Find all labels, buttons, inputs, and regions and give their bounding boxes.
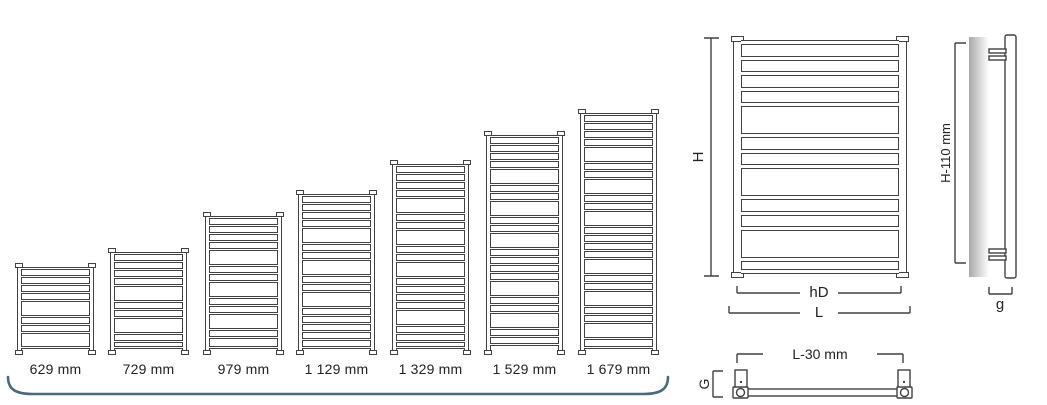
rung-bar (396, 252, 465, 255)
rung-bar (584, 129, 653, 132)
radiator-thumbnail (205, 212, 282, 355)
rung-bar (490, 295, 559, 298)
rung-bar (209, 312, 278, 315)
rung-bar (114, 308, 183, 311)
radiator-thumbnail (17, 263, 94, 355)
top-view-left-riser (735, 370, 747, 389)
rung-bar (114, 316, 183, 319)
rung-bar (490, 199, 559, 202)
rung-bar (302, 218, 371, 221)
rail-cap (557, 350, 565, 355)
rung-bar (490, 279, 559, 282)
side-view-collector-tube (1005, 35, 1016, 278)
rung-bar (302, 306, 371, 309)
rung-bar (396, 284, 465, 287)
rung-bar (584, 257, 653, 260)
collector-rail (205, 215, 210, 352)
rung-bar (209, 328, 278, 331)
side-wall-distance-bracket (989, 287, 1012, 294)
rung-bar (396, 308, 465, 311)
radiator-thumbnail (110, 248, 187, 355)
rung-bar (584, 337, 653, 340)
rung-bar (302, 194, 371, 197)
side-bottom-connector (989, 249, 1006, 253)
rung-bar (490, 263, 559, 266)
top-view-left-pipe (737, 389, 745, 397)
front-view-radiator (733, 36, 907, 278)
rung-bar (302, 282, 371, 285)
radiator-thumbnail (392, 160, 469, 355)
rung-bar (490, 167, 559, 170)
rail-cap (15, 350, 23, 355)
rung-bar (584, 346, 653, 349)
rung-bar (302, 242, 371, 245)
rung-bar (209, 264, 278, 267)
rung-bar (584, 177, 653, 180)
rung-bar (584, 225, 653, 228)
rung-bar (490, 135, 559, 138)
rung-bar (114, 300, 183, 303)
rung-bar (584, 305, 653, 308)
rung-bar (21, 315, 90, 318)
rung-bar (21, 346, 90, 349)
rung-bar (584, 121, 653, 124)
rung-bar (584, 113, 653, 116)
rung-bar (21, 331, 90, 334)
rung-bar (396, 292, 465, 295)
side-bottom-connector (989, 256, 1006, 260)
rung-bar (741, 164, 899, 169)
rung-bar (741, 195, 899, 200)
rung-bar (396, 172, 465, 175)
front-rail-span-label: hD (800, 285, 838, 301)
rung-bar (490, 247, 559, 250)
rung-bar (209, 336, 278, 339)
rung-bar (396, 340, 465, 343)
rung-bar (114, 260, 183, 263)
rung-bar (396, 196, 465, 199)
rung-bar (490, 151, 559, 154)
rail-cap (296, 350, 304, 355)
front-height-label: H (691, 137, 707, 177)
rung-bar (584, 193, 653, 196)
top-depth-bracket (713, 371, 723, 397)
rung-bar (209, 232, 278, 235)
rung-bar (396, 180, 465, 183)
top-view-left-fitting (733, 387, 748, 398)
size-range-brace (8, 377, 668, 394)
rung-bar (302, 322, 371, 325)
rung-bar (21, 267, 90, 270)
rung-bar (302, 202, 371, 205)
rung-bar (21, 291, 90, 294)
rung-bar (302, 274, 371, 277)
rung-bar (114, 340, 183, 343)
rung-bar (21, 323, 90, 326)
rung-bar (584, 281, 653, 284)
rung-bar (741, 87, 899, 92)
rail-cap (484, 350, 492, 355)
rail-cap (88, 350, 96, 355)
rung-bar (584, 233, 653, 236)
rung-bar (209, 304, 278, 307)
radiator-thumbnail (486, 131, 563, 355)
radiator-thumbnail (298, 190, 375, 355)
rail-cap (181, 350, 189, 355)
rung-bar (209, 248, 278, 251)
rung-bar (490, 311, 559, 314)
rung-bar (114, 268, 183, 271)
side-mount-height-bracket (955, 43, 966, 263)
rail-cap (369, 350, 377, 355)
radiator-thumbnail (580, 109, 657, 355)
rung-bar (302, 258, 371, 261)
rung-bar (584, 145, 653, 148)
rung-bar (490, 327, 559, 330)
side-view-wall-panel (969, 37, 989, 277)
collector-rail (652, 112, 657, 352)
rung-bar (209, 240, 278, 243)
rung-bar (396, 346, 465, 349)
side-wall-distance-label: g (985, 297, 1015, 313)
rung-bar (741, 102, 899, 107)
rung-bar (584, 273, 653, 276)
rail-cap (203, 350, 211, 355)
rung-bar (209, 224, 278, 227)
rung-bar (21, 299, 90, 302)
rung-bar (302, 290, 371, 293)
rail-cap (651, 350, 659, 355)
rung-bar (584, 209, 653, 212)
collector-rail (277, 215, 282, 352)
rail-cap (108, 350, 116, 355)
rung-bar (584, 169, 653, 172)
rung-bar (584, 313, 653, 316)
rung-bar (490, 303, 559, 306)
rung-bar (490, 191, 559, 194)
rail-cap (390, 350, 398, 355)
rung-bar (490, 271, 559, 274)
riser-screw-dot (740, 381, 742, 383)
rung-bar (396, 188, 465, 191)
rung-bar (21, 275, 90, 278)
rung-bar (114, 332, 183, 335)
rung-bar (209, 216, 278, 219)
rung-bar (741, 133, 899, 138)
rail-cap (276, 350, 284, 355)
rung-bar (396, 332, 465, 335)
rung-bar (302, 346, 371, 349)
rung-bar (114, 346, 183, 349)
riser-screw-dot (903, 381, 905, 383)
rung-bar (490, 343, 559, 346)
rung-bar (741, 257, 899, 262)
rung-bar (490, 223, 559, 226)
rail-cap (463, 350, 471, 355)
rung-bar (396, 228, 465, 231)
rung-bar (114, 276, 183, 279)
rung-bar (584, 201, 653, 204)
rung-bar (396, 276, 465, 279)
rung-bar (584, 137, 653, 140)
side-mount-height-label: H-110 mm (938, 113, 954, 193)
rung-bar (584, 161, 653, 164)
collector-rail (580, 112, 585, 352)
collector-rail (898, 39, 907, 275)
rung-bar (741, 56, 899, 61)
rung-bar (114, 252, 183, 255)
rung-bar (584, 241, 653, 244)
rung-bar (584, 249, 653, 252)
size-label: 1 679 mm (561, 361, 677, 377)
rung-bar (209, 272, 278, 275)
collector-rail (17, 266, 22, 352)
rung-bar (741, 269, 899, 274)
rung-bar (490, 159, 559, 162)
rung-bar (741, 71, 899, 76)
rung-bar (741, 40, 899, 45)
side-top-connector (989, 56, 1006, 60)
rung-bar (302, 226, 371, 229)
rung-bar (490, 335, 559, 338)
rung-bar (490, 215, 559, 218)
rung-bar (741, 226, 899, 231)
rung-bar (490, 255, 559, 258)
rung-bar (209, 280, 278, 283)
rung-bar (114, 284, 183, 287)
top-view-right-pipe (901, 389, 909, 397)
top-view-right-fitting (897, 387, 912, 398)
top-mount-span-label: L-30 mm (763, 346, 877, 362)
front-total-width-label: L (800, 305, 838, 321)
rung-bar (396, 244, 465, 247)
rung-bar (396, 220, 465, 223)
rung-bar (396, 212, 465, 215)
top-depth-label: G (696, 369, 712, 399)
rung-bar (396, 300, 465, 303)
rung-bar (584, 289, 653, 292)
rail-cap (578, 350, 586, 355)
rung-bar (21, 283, 90, 286)
rung-bar (584, 321, 653, 324)
top-view-tube (747, 389, 899, 396)
rung-bar (302, 338, 371, 341)
rung-bar (302, 250, 371, 253)
rung-bar (209, 346, 278, 349)
collector-rail (370, 193, 375, 352)
rung-bar (396, 260, 465, 263)
rung-bar (741, 211, 899, 216)
rung-bar (396, 324, 465, 327)
rung-bar (741, 149, 899, 154)
rung-bar (490, 143, 559, 146)
rung-bar (396, 164, 465, 167)
rung-bar (490, 231, 559, 234)
radiator-dimension-diagram: H hD L H-110 mm g L-30 mm G 629 mm729 mm… (0, 0, 1047, 405)
rung-bar (490, 183, 559, 186)
collector-rail (89, 266, 94, 352)
rung-bar (302, 210, 371, 213)
rung-bar (302, 314, 371, 317)
rung-bar (209, 296, 278, 299)
collector-rail (298, 193, 303, 352)
top-view-right-riser (898, 370, 910, 389)
rung-bar (302, 330, 371, 333)
side-top-connector (989, 49, 1006, 53)
